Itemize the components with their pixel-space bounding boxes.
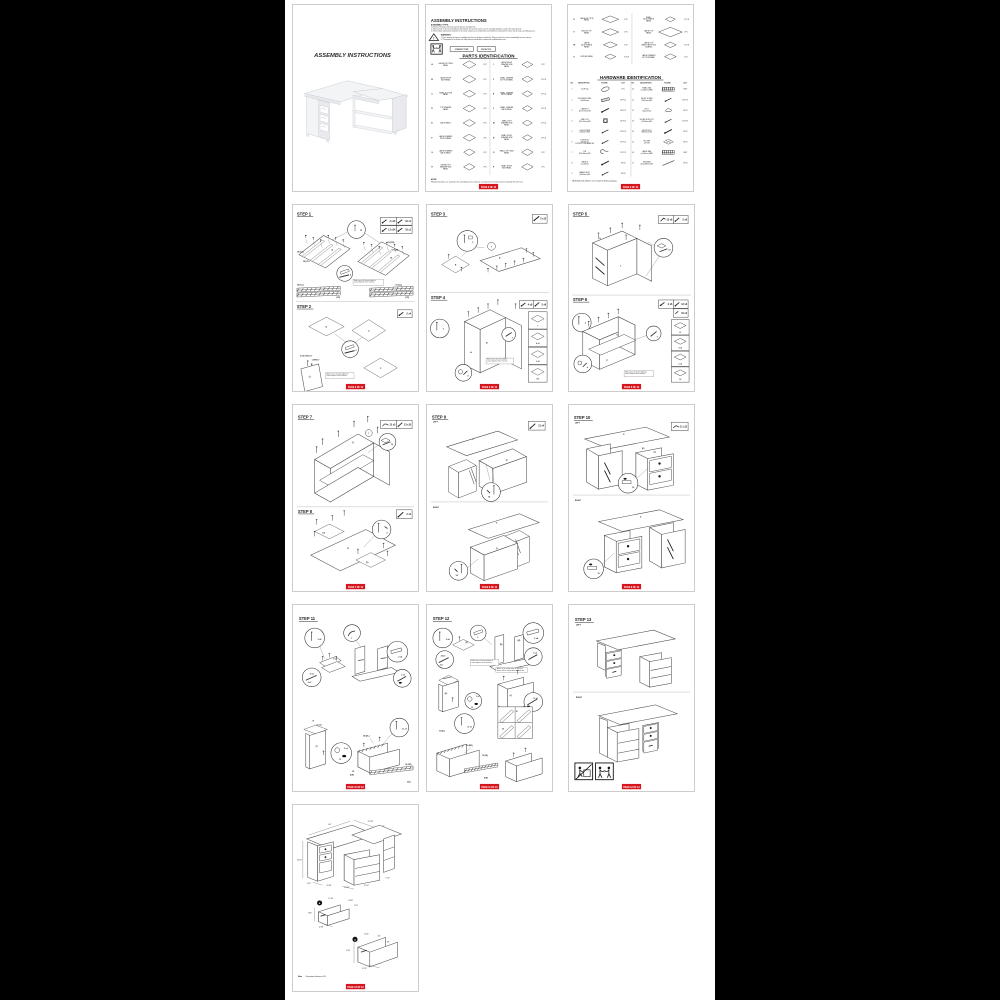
svg-text:PAGE 8 OF 13: PAGE 8 OF 13 — [482, 586, 498, 589]
svg-text:(O): (O) — [366, 562, 369, 564]
svg-text:2 x4: 2 x4 — [407, 313, 412, 316]
svg-text:PANEL: PANEL — [443, 167, 448, 170]
svg-text:STEP 3: STEP 3 — [431, 211, 446, 216]
svg-text:Note: Note — [298, 975, 303, 978]
svg-text:WOODEN DOWEL: WOODEN DOWEL — [578, 98, 591, 100]
svg-text:!: ! — [433, 37, 434, 41]
svg-text:10 PCS: 10 PCS — [682, 120, 687, 122]
svg-text:(F): (F) — [465, 642, 468, 644]
svg-text:19 (DR): 19 (DR) — [466, 745, 473, 747]
svg-text:H: H — [313, 721, 315, 723]
svg-text:12 1/8": 12 1/8" — [319, 927, 324, 929]
svg-text:LONG SCREW: LONG SCREW — [579, 130, 590, 132]
svg-text:U: U — [573, 19, 575, 21]
svg-text:1 PC: 1 PC — [684, 56, 688, 58]
svg-text:L: L — [493, 108, 495, 110]
svg-text:PANEL: PANEL — [584, 45, 589, 48]
svg-text:3 x8: 3 x8 — [542, 303, 547, 306]
svg-text:RIGHT: RIGHT — [576, 697, 583, 699]
svg-text:DESCRIPTION: DESCRIPTION — [578, 83, 590, 85]
svg-text:LEFT: LEFT — [575, 423, 581, 425]
svg-text:(O): (O) — [323, 532, 326, 534]
svg-text:2 1/2": 2 1/2" — [354, 905, 358, 907]
svg-text:PAGE 7 OF 13: PAGE 7 OF 13 — [348, 586, 364, 589]
svg-text:1 PC: 1 PC — [483, 79, 487, 81]
svg-text:ASSEMBLY INSTRUCTIONS: ASSEMBLY INSTRUCTIONS — [313, 53, 391, 59]
svg-text:H: H — [431, 167, 433, 169]
svg-text:6: 6 — [571, 141, 572, 143]
svg-text:12 x5: 12 x5 — [389, 423, 396, 426]
svg-text:F: F — [431, 137, 433, 139]
svg-text:M: M — [493, 123, 495, 125]
svg-text:7: 7 — [571, 152, 572, 154]
svg-text:STICKER: STICKER — [643, 140, 651, 142]
svg-text:SHORT BOLT: SHORT BOLT — [642, 130, 652, 132]
svg-text:K: K — [493, 93, 495, 95]
svg-text:15: 15 — [339, 759, 341, 761]
svg-text:SMALL RAIL: SMALL RAIL — [642, 87, 651, 90]
svg-text:14: 14 — [679, 378, 681, 381]
svg-text:PANEL: PANEL — [646, 32, 651, 35]
svg-text:I: I — [493, 64, 494, 66]
svg-text:2 PCS: 2 PCS — [684, 19, 690, 21]
svg-text:PANEL: PANEL — [504, 123, 509, 126]
svg-text:PANEL: PANEL — [584, 32, 589, 35]
svg-text:BACK PANEL: BACK PANEL — [502, 108, 512, 111]
svg-text:FRONT PANEL: FRONT PANEL — [501, 93, 513, 96]
svg-text:20 PCS: 20 PCS — [620, 131, 625, 133]
svg-text:5 PCS: 5 PCS — [683, 110, 688, 112]
svg-text:13 x4: 13 x4 — [538, 425, 545, 428]
svg-text:(CR): (CR) — [405, 297, 409, 299]
svg-text:STEP 13: STEP 13 — [575, 617, 592, 622]
svg-text:12 3/4": 12 3/4" — [328, 898, 333, 900]
svg-text:LEFT: LEFT — [576, 625, 582, 627]
svg-text:4 x8: 4 x8 — [528, 303, 533, 306]
svg-text:(DL): (DL) — [407, 782, 411, 784]
svg-text:FIGURE: FIGURE — [601, 83, 608, 85]
svg-text:1 PC: 1 PC — [684, 32, 688, 34]
svg-text:(M): (M) — [518, 640, 521, 642]
svg-text:O: O — [493, 152, 495, 154]
svg-text:13: 13 — [632, 120, 634, 122]
svg-text:SCREW FOR FOOT: SCREW FOR FOOT — [640, 119, 654, 121]
svg-text:Dimension tolerance ±3%: Dimension tolerance ±3% — [306, 975, 327, 978]
svg-text:2 PCS: 2 PCS — [541, 123, 547, 125]
svg-text:PANEL: PANEL — [443, 108, 448, 111]
svg-text:(¢10x30mm): (¢10x30mm) — [580, 100, 589, 102]
svg-text:RIGHT: RIGHT — [575, 500, 582, 502]
svg-text:2 PCS: 2 PCS — [541, 108, 547, 110]
svg-text:30 PCS: 30 PCS — [620, 99, 625, 101]
svg-text:9 1/2": 9 1/2" — [307, 883, 312, 885]
svg-text:3 x6: 3 x6 — [679, 363, 682, 365]
svg-text:(¢6x35mm): (¢6x35mm) — [581, 141, 589, 143]
svg-text:15: 15 — [471, 707, 473, 709]
svg-text:3/4": 3/4" — [378, 935, 381, 937]
svg-text:36 PCS: 36 PCS — [620, 110, 625, 112]
svg-text:12: 12 — [679, 332, 681, 334]
svg-text:2: 2 — [571, 99, 572, 101]
svg-text:STEP 9: STEP 9 — [432, 414, 447, 419]
svg-text:1 PC: 1 PC — [541, 152, 545, 154]
svg-text:1 PC: 1 PC — [483, 64, 487, 66]
svg-text:(¢10x28mm) M6: (¢10x28mm) M6 — [579, 153, 591, 155]
svg-text:NO.: NO. — [631, 83, 634, 85]
svg-text:9 3/8": 9 3/8" — [346, 950, 350, 952]
svg-text:19 (CL): 19 (CL) — [395, 285, 402, 287]
svg-text:N: N — [493, 137, 495, 139]
svg-text:7: 7 — [351, 638, 352, 640]
svg-text:FOOT: FOOT — [645, 109, 649, 111]
svg-text:SIDE PANEL: SIDE PANEL — [502, 166, 512, 169]
svg-text:V: V — [573, 32, 575, 34]
svg-text:8: 8 — [571, 162, 572, 164]
svg-text:11 x4: 11 x4 — [402, 727, 406, 730]
svg-text:12: 12 — [516, 711, 518, 713]
svg-text:1 PC: 1 PC — [541, 64, 545, 66]
svg-text:STEP 7: STEP 7 — [298, 414, 313, 419]
svg-text:PARTS IDENTIFICATION: PARTS IDENTIFICATION — [462, 54, 514, 59]
svg-text:16: 16 — [632, 152, 634, 154]
svg-text:PAGE 11 OF 13: PAGE 11 OF 13 — [481, 786, 498, 789]
svg-text:2 x12: 2 x12 — [540, 218, 547, 221]
svg-text:3 PCS: 3 PCS — [621, 162, 626, 164]
svg-text:17: 17 — [632, 162, 634, 164]
svg-text:14 PCS: 14 PCS — [620, 141, 625, 143]
svg-text:1 PC: 1 PC — [621, 89, 625, 91]
svg-text:23 7/8": 23 7/8" — [368, 821, 374, 823]
svg-text:G: G — [431, 152, 433, 154]
svg-text:BACK PANEL: BACK PANEL — [441, 152, 451, 155]
svg-text:CORRECT: CORRECT — [312, 360, 320, 362]
svg-text:14 1/4": 14 1/4" — [364, 933, 369, 935]
svg-text:19 (DL): 19 (DL) — [363, 735, 370, 737]
svg-text:(DR): (DR) — [484, 778, 488, 780]
svg-text:1 PC: 1 PC — [624, 32, 628, 34]
svg-text:(4 PCS): (4 PCS) — [644, 142, 650, 144]
svg-text:12: 12 — [632, 110, 634, 112]
svg-text:C: C — [431, 93, 433, 95]
svg-text:19 x2: 19 x2 — [681, 312, 688, 315]
svg-text:15 3/8": 15 3/8" — [348, 900, 353, 902]
svg-text:19 (DL): 19 (DL) — [439, 730, 445, 732]
svg-text:(¢4x22mm) M6: (¢4x22mm) M6 — [579, 174, 590, 176]
svg-text:2 x6: 2 x6 — [683, 218, 688, 221]
svg-text:14: 14 — [502, 727, 504, 730]
svg-text:11 x8: 11 x8 — [533, 698, 537, 700]
svg-text:D: D — [431, 108, 433, 110]
svg-text:W: W — [573, 45, 575, 47]
svg-text:STEP 11: STEP 11 — [299, 616, 316, 621]
svg-text:2 x6: 2 x6 — [668, 303, 673, 306]
svg-text:(¢4x20mm) M6: (¢4x20mm) M6 — [641, 121, 652, 123]
svg-text:(K): (K) — [445, 693, 448, 695]
svg-text:PANEL: PANEL — [443, 93, 448, 96]
svg-text:19 (CR): 19 (CR) — [391, 250, 398, 252]
svg-text:19 (CR): 19 (CR) — [387, 242, 394, 244]
svg-text:11 x12: 11 x12 — [680, 425, 688, 428]
svg-text:1 PC: 1 PC — [483, 167, 487, 169]
svg-text:13 x6: 13 x6 — [666, 218, 673, 221]
svg-text:(DR): (DR) — [350, 774, 354, 776]
svg-text:PAGE 13 OF 13: PAGE 13 OF 13 — [347, 986, 364, 989]
svg-text:FRONT PANEL: FRONT PANEL — [440, 137, 452, 140]
svg-text:PAGE 3 OF 13: PAGE 3 OF 13 — [348, 386, 364, 389]
svg-text:(C): (C) — [599, 238, 602, 240]
svg-text:29 1/2": 29 1/2" — [297, 860, 303, 862]
svg-text:STEP 4: STEP 4 — [431, 295, 446, 300]
svg-text:19 (DL): 19 (DL) — [482, 755, 488, 757]
svg-text:LEFT: LEFT — [433, 422, 439, 424]
svg-text:CAM LOCK: CAM LOCK — [581, 118, 590, 121]
svg-text:2B,2B,21B,21D,21B,21T not incl: 2B,2B,21B,21D,21B,21T not included in Me… — [572, 179, 617, 182]
svg-text:7: 7 — [512, 337, 513, 339]
svg-text:DESCRIPTION: DESCRIPTION — [640, 83, 652, 85]
svg-text:30 PCS: 30 PCS — [682, 99, 687, 101]
svg-text:2 x4: 2 x4 — [407, 513, 412, 516]
svg-text:1 PC: 1 PC — [483, 152, 487, 154]
svg-text:13 x24: 13 x24 — [388, 228, 396, 231]
svg-text:14: 14 — [632, 131, 634, 133]
svg-text:PANEL: PANEL — [504, 65, 509, 68]
svg-text:8 x2: 8 x2 — [308, 682, 311, 684]
svg-text:19 (CL): 19 (CL) — [303, 261, 310, 263]
svg-text:M6x25mm) M6: M6x25mm) M6 — [642, 132, 653, 134]
svg-text:3 x8: 3 x8 — [536, 361, 539, 363]
svg-text:PAGE 2 OF 13: PAGE 2 OF 13 — [481, 186, 497, 189]
svg-text:2 PCS: 2 PCS — [683, 141, 688, 143]
svg-text:GLUE DIRECTLY: GLUE DIRECTLY — [300, 356, 313, 358]
svg-text:1 PC: 1 PC — [541, 167, 545, 169]
svg-text:7: 7 — [537, 326, 538, 328]
svg-text:1 PC: 1 PC — [483, 123, 487, 125]
svg-text:PANEL: PANEL — [504, 152, 509, 155]
svg-text:2 x2: 2 x2 — [476, 696, 479, 698]
svg-text:(¢50x15mm): (¢50x15mm) — [642, 111, 651, 113]
svg-text:4 9x2: 4 9x2 — [441, 655, 445, 658]
svg-text:(L): (L) — [510, 695, 513, 697]
svg-text:PAGE 9 OF 13: PAGE 9 OF 13 — [624, 586, 640, 589]
svg-text:STEP 12: STEP 12 — [433, 616, 450, 621]
svg-text:7: 7 — [657, 336, 658, 338]
svg-text:SHORT SCREW: SHORT SCREW — [641, 98, 653, 100]
svg-text:B: B — [431, 79, 433, 81]
svg-text:E: E — [431, 123, 433, 125]
svg-text:1 PC: 1 PC — [483, 137, 487, 139]
svg-text:STEP 8: STEP 8 — [298, 509, 313, 514]
svg-text:ASSEMBLY INSTRUCTIONS: ASSEMBLY INSTRUCTIONS — [431, 18, 487, 23]
svg-text:QTY: QTY — [683, 83, 687, 85]
svg-text:6 PCS: 6 PCS — [621, 173, 626, 175]
svg-text:NO.: NO. — [570, 83, 573, 85]
svg-text:(¢4x50mm) M6: (¢4x50mm) M6 — [579, 132, 590, 134]
svg-text:(¢15x12mm) M6: (¢15x12mm) M6 — [579, 121, 591, 123]
svg-text:STEP 6: STEP 6 — [573, 297, 588, 302]
svg-text:LONG BOLT: LONG BOLT — [580, 139, 589, 141]
svg-text:10: 10 — [632, 487, 634, 489]
svg-text:CAM BOLT: CAM BOLT — [581, 108, 589, 111]
svg-text:BOTTOM PANEL: BOTTOM PANEL — [500, 79, 513, 82]
svg-text:5 PCS: 5 PCS — [683, 131, 688, 133]
svg-text:LARGE RAIL: LARGE RAIL — [642, 150, 651, 153]
svg-text:12 7/8": 12 7/8" — [362, 968, 367, 970]
svg-text:1 SET: 1 SET — [683, 152, 687, 154]
svg-text:(K): (K) — [642, 448, 645, 450]
svg-text:4 3/8": 4 3/8" — [308, 913, 312, 915]
svg-text:RIGHT: RIGHT — [433, 507, 440, 509]
svg-text:15: 15 — [632, 141, 634, 143]
svg-text:PANEL: PANEL — [646, 20, 651, 23]
svg-text:36 PCS: 36 PCS — [620, 120, 625, 122]
svg-text:2 PCS: 2 PCS — [684, 45, 690, 47]
svg-text:11: 11 — [632, 99, 634, 101]
svg-text:STEP 10: STEP 10 — [574, 415, 591, 420]
svg-text:15 1/2": 15 1/2" — [364, 885, 370, 887]
svg-text:8 x2: 8 x2 — [333, 659, 336, 661]
svg-text:2 PCS: 2 PCS — [624, 56, 630, 58]
svg-text:3 x4: 3 x4 — [533, 652, 536, 655]
svg-text:7: 7 — [368, 433, 369, 435]
svg-text:PANEL: PANEL — [443, 64, 448, 67]
svg-text:SIDE PANEL: SIDE PANEL — [441, 79, 451, 82]
svg-text:1 PC: 1 PC — [624, 45, 628, 47]
svg-text:13 x6: 13 x6 — [681, 303, 688, 306]
svg-text:HANDLE: HANDLE — [582, 160, 588, 163]
svg-text:2. This product is for home us: 2. This product is for home use only and… — [441, 38, 507, 41]
svg-text:QTY: QTY — [621, 83, 625, 85]
svg-text:GLUE 50g: GLUE 50g — [581, 89, 588, 91]
svg-text:Fittings listed above are requ: Fittings listed above are required in th… — [431, 181, 524, 184]
svg-text:2 PCS: 2 PCS — [541, 137, 547, 139]
svg-text:HANDLE BOLT: HANDLE BOLT — [579, 171, 590, 174]
svg-text:IRON BAR: IRON BAR — [643, 160, 651, 163]
svg-text:(N): (N) — [500, 644, 503, 646]
svg-text:11 x8: 11 x8 — [467, 727, 471, 729]
svg-text:4 x6: 4 x6 — [679, 347, 682, 350]
svg-text:50195CY51: 50195CY51 — [481, 49, 492, 51]
svg-text:(¢7x47.5mm) M6: (¢7x47.5mm) M6 — [579, 111, 591, 113]
svg-text:PAGE 2 OF 13: PAGE 2 OF 13 — [623, 186, 639, 189]
svg-text:2: 2 — [477, 637, 478, 639]
svg-text:13 x10: 13 x10 — [404, 423, 412, 426]
svg-text:3. Please follow attached inst: 3. Please follow attached instructions i… — [431, 30, 536, 33]
svg-text:HARDWARE IDENTIFICATION: HARDWARE IDENTIFICATION — [600, 75, 661, 80]
svg-text:10: 10 — [598, 573, 600, 575]
svg-text:(¢4x14mm) M6: (¢4x14mm) M6 — [641, 100, 652, 102]
svg-text:FIGURE: FIGURE — [664, 83, 671, 85]
svg-text:PANEL: PANEL — [504, 138, 509, 141]
svg-text:STEP 2: STEP 2 — [297, 304, 312, 309]
svg-text:2 x4: 2 x4 — [344, 747, 347, 750]
svg-text:19 x1: 19 x1 — [405, 228, 412, 231]
svg-text:PAGE 4 OF 13: PAGE 4 OF 13 — [482, 386, 498, 389]
svg-text:12 PCS: 12 PCS — [620, 152, 625, 154]
svg-text:2 x10: 2 x10 — [389, 220, 396, 223]
svg-text:1 SET: 1 SET — [683, 89, 687, 91]
svg-text:7: 7 — [491, 246, 492, 248]
svg-text:1: 1 — [571, 89, 572, 91]
svg-text:A: A — [431, 63, 433, 66]
svg-text:3: 3 — [571, 110, 572, 112]
svg-text:(¢10x498mm) M6: (¢10x498mm) M6 — [641, 163, 653, 165]
svg-text:(L=128mm): (L=128mm) — [581, 163, 590, 165]
svg-text:10: 10 — [632, 89, 634, 91]
svg-text:X: X — [573, 56, 575, 58]
svg-text:2 PCS: 2 PCS — [683, 162, 688, 164]
svg-text:(CR): (CR) — [336, 297, 340, 299]
svg-text:STEP 5: STEP 5 — [573, 211, 588, 216]
svg-text:BOARDS: BOARDS — [645, 45, 653, 48]
svg-text:1 PC: 1 PC — [624, 19, 628, 21]
svg-text:PANEL: PANEL — [584, 19, 589, 22]
svg-text:2 PCS: 2 PCS — [541, 93, 547, 95]
svg-text:3 x4: 3 x4 — [401, 673, 404, 676]
svg-text:STEP 1: STEP 1 — [297, 211, 312, 216]
svg-text:19 (DR): 19 (DR) — [405, 764, 412, 766]
svg-text:5: 5 — [571, 131, 572, 133]
svg-text:19: 19 — [352, 771, 355, 773]
svg-text:5745865Y77NF: 5745865Y77NF — [455, 48, 469, 51]
svg-text:2x1: 2x1 — [440, 665, 443, 667]
svg-text:BACK PANEL: BACK PANEL — [441, 121, 451, 124]
svg-text:BOTTOM PANEL: BOTTOM PANEL — [642, 56, 655, 59]
svg-text:P: P — [493, 167, 495, 169]
svg-text:PAGE 12 OF 13: PAGE 12 OF 13 — [623, 786, 640, 789]
svg-text:9 1/2": 9 1/2" — [386, 877, 391, 879]
svg-text:1 PC: 1 PC — [483, 108, 487, 110]
svg-text:19 x1: 19 x1 — [405, 220, 412, 223]
svg-text:19 (CL): 19 (CL) — [297, 285, 304, 287]
svg-text:J: J — [493, 79, 494, 81]
svg-text:19 (CL): 19 (CL) — [297, 252, 304, 254]
svg-text:DIVIDER PANEL: DIVIDER PANEL — [580, 55, 593, 58]
svg-text:60": 60" — [328, 824, 331, 826]
svg-text:1 PC: 1 PC — [483, 93, 487, 95]
svg-text:PAGE 5 OF 13: PAGE 5 OF 13 — [624, 386, 640, 389]
svg-text:15 3/4": 15 3/4" — [326, 885, 332, 887]
svg-text:PAGE 10 OF 13: PAGE 10 OF 13 — [347, 786, 364, 789]
svg-text:9: 9 — [571, 173, 572, 175]
svg-text:4: 4 — [571, 120, 572, 122]
svg-text:2 PCS: 2 PCS — [541, 79, 547, 81]
svg-text:PIN: PIN — [583, 151, 586, 153]
svg-text:4 x8: 4 x8 — [536, 342, 539, 345]
